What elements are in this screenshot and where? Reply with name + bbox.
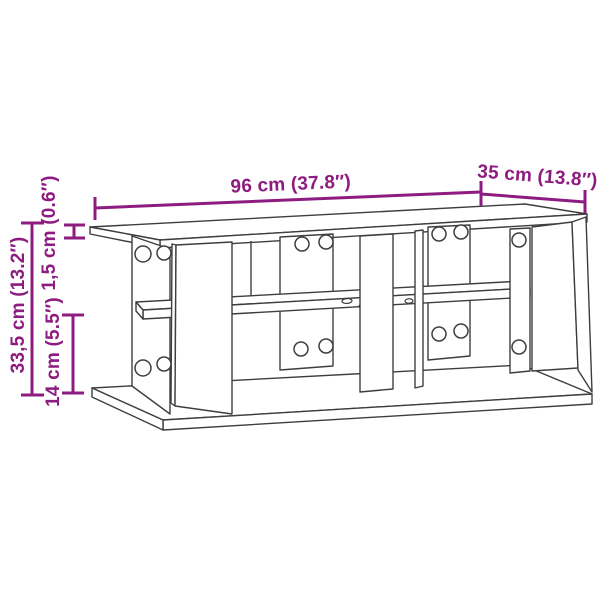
drill-hole-icon bbox=[135, 360, 151, 376]
drill-hole-icon bbox=[295, 237, 309, 251]
height-dimension-label: 33,5 cm (13.2″) bbox=[8, 237, 29, 374]
left-divider-panel bbox=[171, 242, 232, 414]
tv-cabinet-drawing bbox=[90, 204, 592, 430]
furniture-dimension-diagram: 96 cm (37.8″) 35 cm (13.8″) 33,5 cm (13.… bbox=[0, 0, 600, 600]
drill-hole-icon bbox=[157, 357, 171, 371]
drill-hole-icon bbox=[294, 342, 308, 356]
middle-divider-panel bbox=[360, 230, 423, 392]
top-thickness-dimension-label: 1,5 cm (0.6″) bbox=[39, 175, 60, 290]
dimension-top-thickness: 1,5 cm (0.6″) bbox=[39, 175, 85, 290]
right-divider-panel bbox=[510, 228, 530, 373]
drill-hole-icon bbox=[432, 327, 446, 341]
right-side-panel bbox=[532, 217, 592, 392]
left-mounting-panel bbox=[132, 236, 171, 414]
drill-hole-icon bbox=[432, 227, 446, 241]
width-dimension-label: 96 cm (37.8″) bbox=[230, 171, 351, 197]
shelf-slot-icon bbox=[342, 298, 352, 303]
drill-hole-icon bbox=[135, 246, 151, 262]
drill-hole-icon bbox=[454, 324, 468, 338]
bottom-clearance-dimension-label: 14 cm (5.5″) bbox=[43, 297, 64, 407]
drill-hole-icon bbox=[512, 233, 526, 247]
dimension-bottom-clearance: 14 cm (5.5″) bbox=[43, 297, 84, 407]
drill-hole-icon bbox=[454, 225, 468, 239]
drill-hole-icon bbox=[319, 339, 333, 353]
drill-hole-icon bbox=[157, 246, 171, 260]
shelf-slot-icon bbox=[405, 299, 413, 304]
drill-hole-icon bbox=[319, 235, 333, 249]
drill-hole-icon bbox=[512, 340, 526, 354]
depth-dimension-label: 35 cm (13.8″) bbox=[477, 161, 599, 191]
